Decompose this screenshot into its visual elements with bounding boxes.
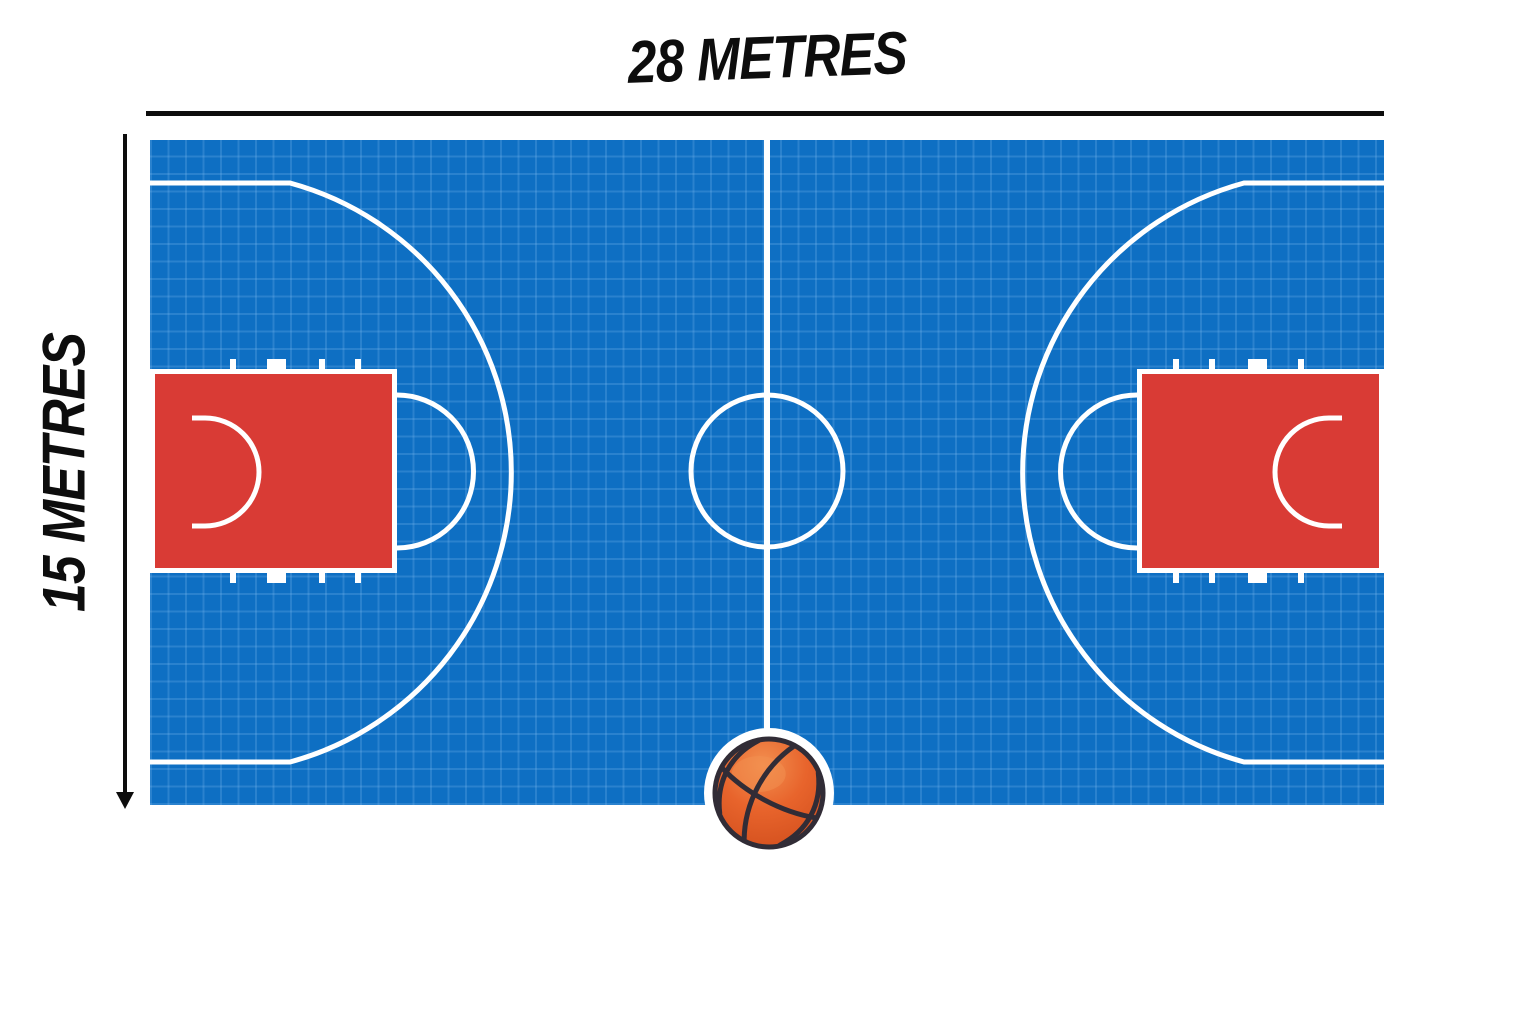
width-dimension-line xyxy=(146,111,1384,116)
right-half-markings xyxy=(1023,183,1384,762)
down-arrowhead-icon xyxy=(116,792,134,809)
width-dimension-label: 28 METRES xyxy=(150,18,1384,96)
width-dimension-text: 28 METRES xyxy=(626,18,907,97)
ball-base xyxy=(703,727,835,859)
basketball-court xyxy=(150,140,1384,805)
height-dimension-text: 15 METRES xyxy=(30,333,99,612)
ball-graphic xyxy=(703,727,835,859)
free-throw-semicircle xyxy=(397,395,473,548)
height-dimension-line xyxy=(123,134,127,794)
court-markings xyxy=(150,140,1384,805)
left-half-markings xyxy=(150,183,511,762)
height-dimension-label: 15 METRES xyxy=(0,140,128,805)
key-paint xyxy=(153,372,395,571)
basketball-icon xyxy=(703,727,835,859)
